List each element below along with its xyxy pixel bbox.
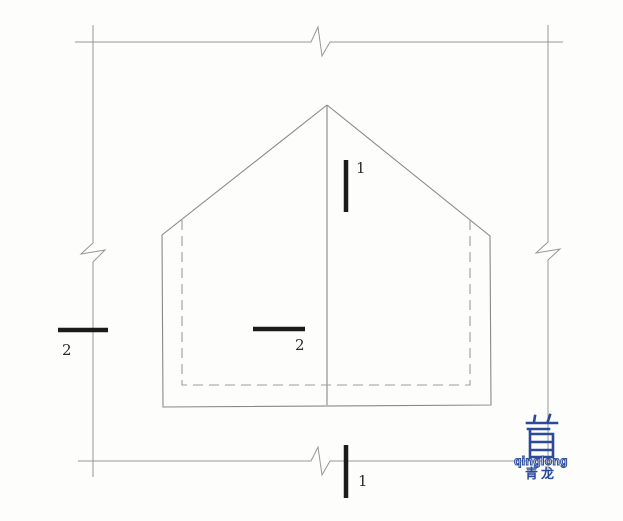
section-label-1-bottom: 1 bbox=[358, 474, 368, 489]
inner-dashed-outline bbox=[182, 220, 470, 385]
blueprint-page: 1 1 2 2 qinglong 青龙 bbox=[0, 0, 623, 521]
qinglong-seal-glyph-icon bbox=[527, 415, 557, 457]
section-label-2-left: 2 bbox=[62, 343, 72, 358]
drawing-canvas bbox=[0, 0, 623, 521]
section-label-2-inner: 2 bbox=[295, 338, 305, 353]
section-label-1-top: 1 bbox=[356, 161, 366, 176]
right-border-line-with-break bbox=[536, 25, 560, 475]
bottom-border-line-with-break bbox=[78, 447, 556, 475]
top-border-line-with-break bbox=[75, 27, 563, 56]
left-border-line-with-break bbox=[81, 25, 105, 477]
logo-chinese-name: 青龙 bbox=[508, 467, 574, 480]
